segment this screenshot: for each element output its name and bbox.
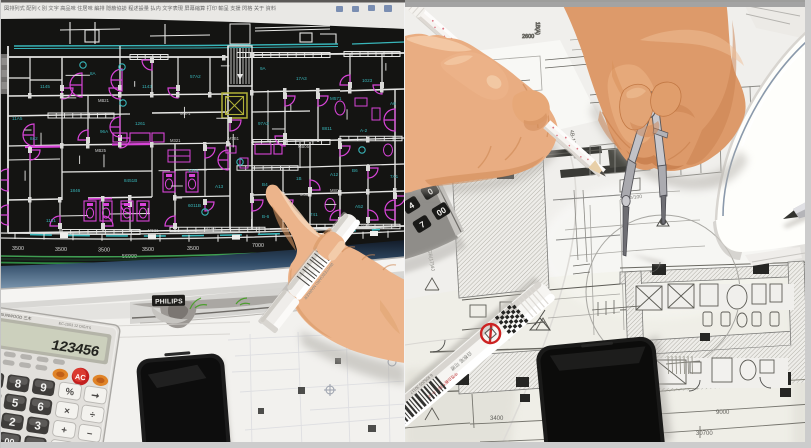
svg-text:B4: B4: [262, 182, 268, 187]
svg-text:M571: M571: [330, 96, 342, 101]
svg-text:17A3: 17A3: [296, 76, 307, 81]
svg-text:1023: 1023: [362, 78, 373, 83]
svg-text:M7B1: M7B1: [228, 136, 240, 141]
svg-text:3500: 3500: [55, 247, 67, 253]
svg-text:8811: 8811: [322, 126, 332, 131]
svg-text:1B(A): 1B(A): [534, 22, 540, 35]
svg-text:57A2: 57A2: [190, 74, 201, 79]
svg-text:1B: 1B: [296, 176, 302, 181]
svg-text:11A5: 11A5: [12, 116, 23, 121]
svg-text:1145: 1145: [40, 84, 50, 89]
svg-text:B-6: B-6: [262, 214, 270, 219]
svg-text:1261: 1261: [135, 121, 146, 126]
svg-text:1846: 1846: [70, 188, 81, 193]
svg-text:741: 741: [310, 212, 318, 217]
svg-text:8451B: 8451B: [124, 178, 137, 183]
svg-text:A12: A12: [330, 172, 339, 177]
svg-text:M571: M571: [180, 111, 191, 116]
svg-text:3500: 3500: [142, 247, 154, 253]
svg-text:97A3: 97A3: [258, 121, 269, 126]
svg-text:8A: 8A: [90, 71, 97, 76]
svg-text:MB05: MB05: [298, 144, 310, 149]
svg-text:B6: B6: [352, 168, 358, 173]
svg-text:3400: 3400: [490, 416, 504, 422]
svg-text:M521: M521: [148, 228, 159, 233]
svg-text:A52: A52: [355, 204, 364, 209]
svg-text:A13: A13: [215, 184, 224, 189]
svg-text:A6: A6: [390, 101, 396, 106]
svg-text:9000: 9000: [716, 410, 730, 416]
svg-text:3500: 3500: [187, 246, 199, 252]
svg-text:2600: 2600: [522, 34, 534, 40]
svg-text:図排列式 配列く別 文字 高品味 住居味 編排: 図排列式 配列く別 文字 高品味 住居味 編排 隠蔽協談 程述設量 払内 文字表…: [4, 4, 276, 12]
svg-text:AC: AC: [74, 372, 87, 383]
svg-text:MB21: MB21: [98, 98, 110, 103]
svg-text:9A: 9A: [260, 66, 267, 71]
svg-text:30700: 30700: [696, 431, 713, 437]
svg-text:MB25: MB25: [95, 148, 107, 153]
svg-text:PHILIPS: PHILIPS: [155, 298, 183, 305]
svg-text:6011B: 6011B: [188, 203, 201, 208]
svg-text:3500: 3500: [12, 246, 24, 252]
svg-text:1143: 1143: [142, 84, 152, 89]
svg-text:1131: 1131: [46, 218, 56, 223]
svg-text:7A1: 7A1: [390, 174, 399, 179]
svg-text:842: 842: [30, 136, 38, 141]
svg-text:3500: 3500: [98, 248, 110, 254]
svg-text:M321: M321: [170, 138, 181, 143]
svg-text:M15B: M15B: [205, 226, 216, 231]
svg-text:A-2: A-2: [360, 128, 368, 133]
svg-text:1376: 1376: [188, 168, 199, 173]
svg-text:7000: 7000: [252, 243, 264, 249]
svg-text:96A: 96A: [100, 129, 109, 134]
